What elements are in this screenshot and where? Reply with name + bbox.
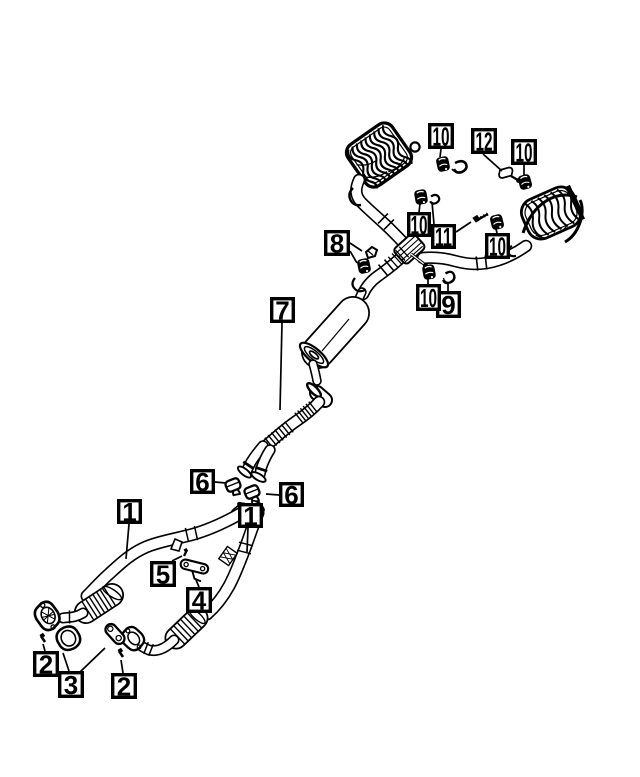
svg-text:10: 10 bbox=[433, 121, 450, 151]
svg-text:1: 1 bbox=[243, 501, 257, 531]
svg-text:10: 10 bbox=[420, 283, 437, 313]
svg-text:9: 9 bbox=[441, 290, 455, 320]
svg-text:6: 6 bbox=[284, 480, 298, 510]
svg-text:10: 10 bbox=[489, 231, 506, 261]
svg-text:11: 11 bbox=[435, 222, 452, 252]
svg-text:2: 2 bbox=[117, 671, 131, 701]
svg-text:6: 6 bbox=[195, 467, 209, 497]
svg-text:12: 12 bbox=[476, 126, 493, 156]
svg-text:1: 1 bbox=[122, 497, 136, 527]
svg-text:2: 2 bbox=[39, 649, 53, 679]
svg-text:4: 4 bbox=[192, 585, 207, 615]
svg-text:10: 10 bbox=[516, 137, 533, 167]
svg-text:10: 10 bbox=[411, 210, 428, 240]
svg-text:5: 5 bbox=[156, 559, 170, 589]
svg-text:3: 3 bbox=[64, 670, 78, 700]
svg-text:8: 8 bbox=[330, 228, 344, 258]
svg-text:7: 7 bbox=[275, 295, 289, 325]
